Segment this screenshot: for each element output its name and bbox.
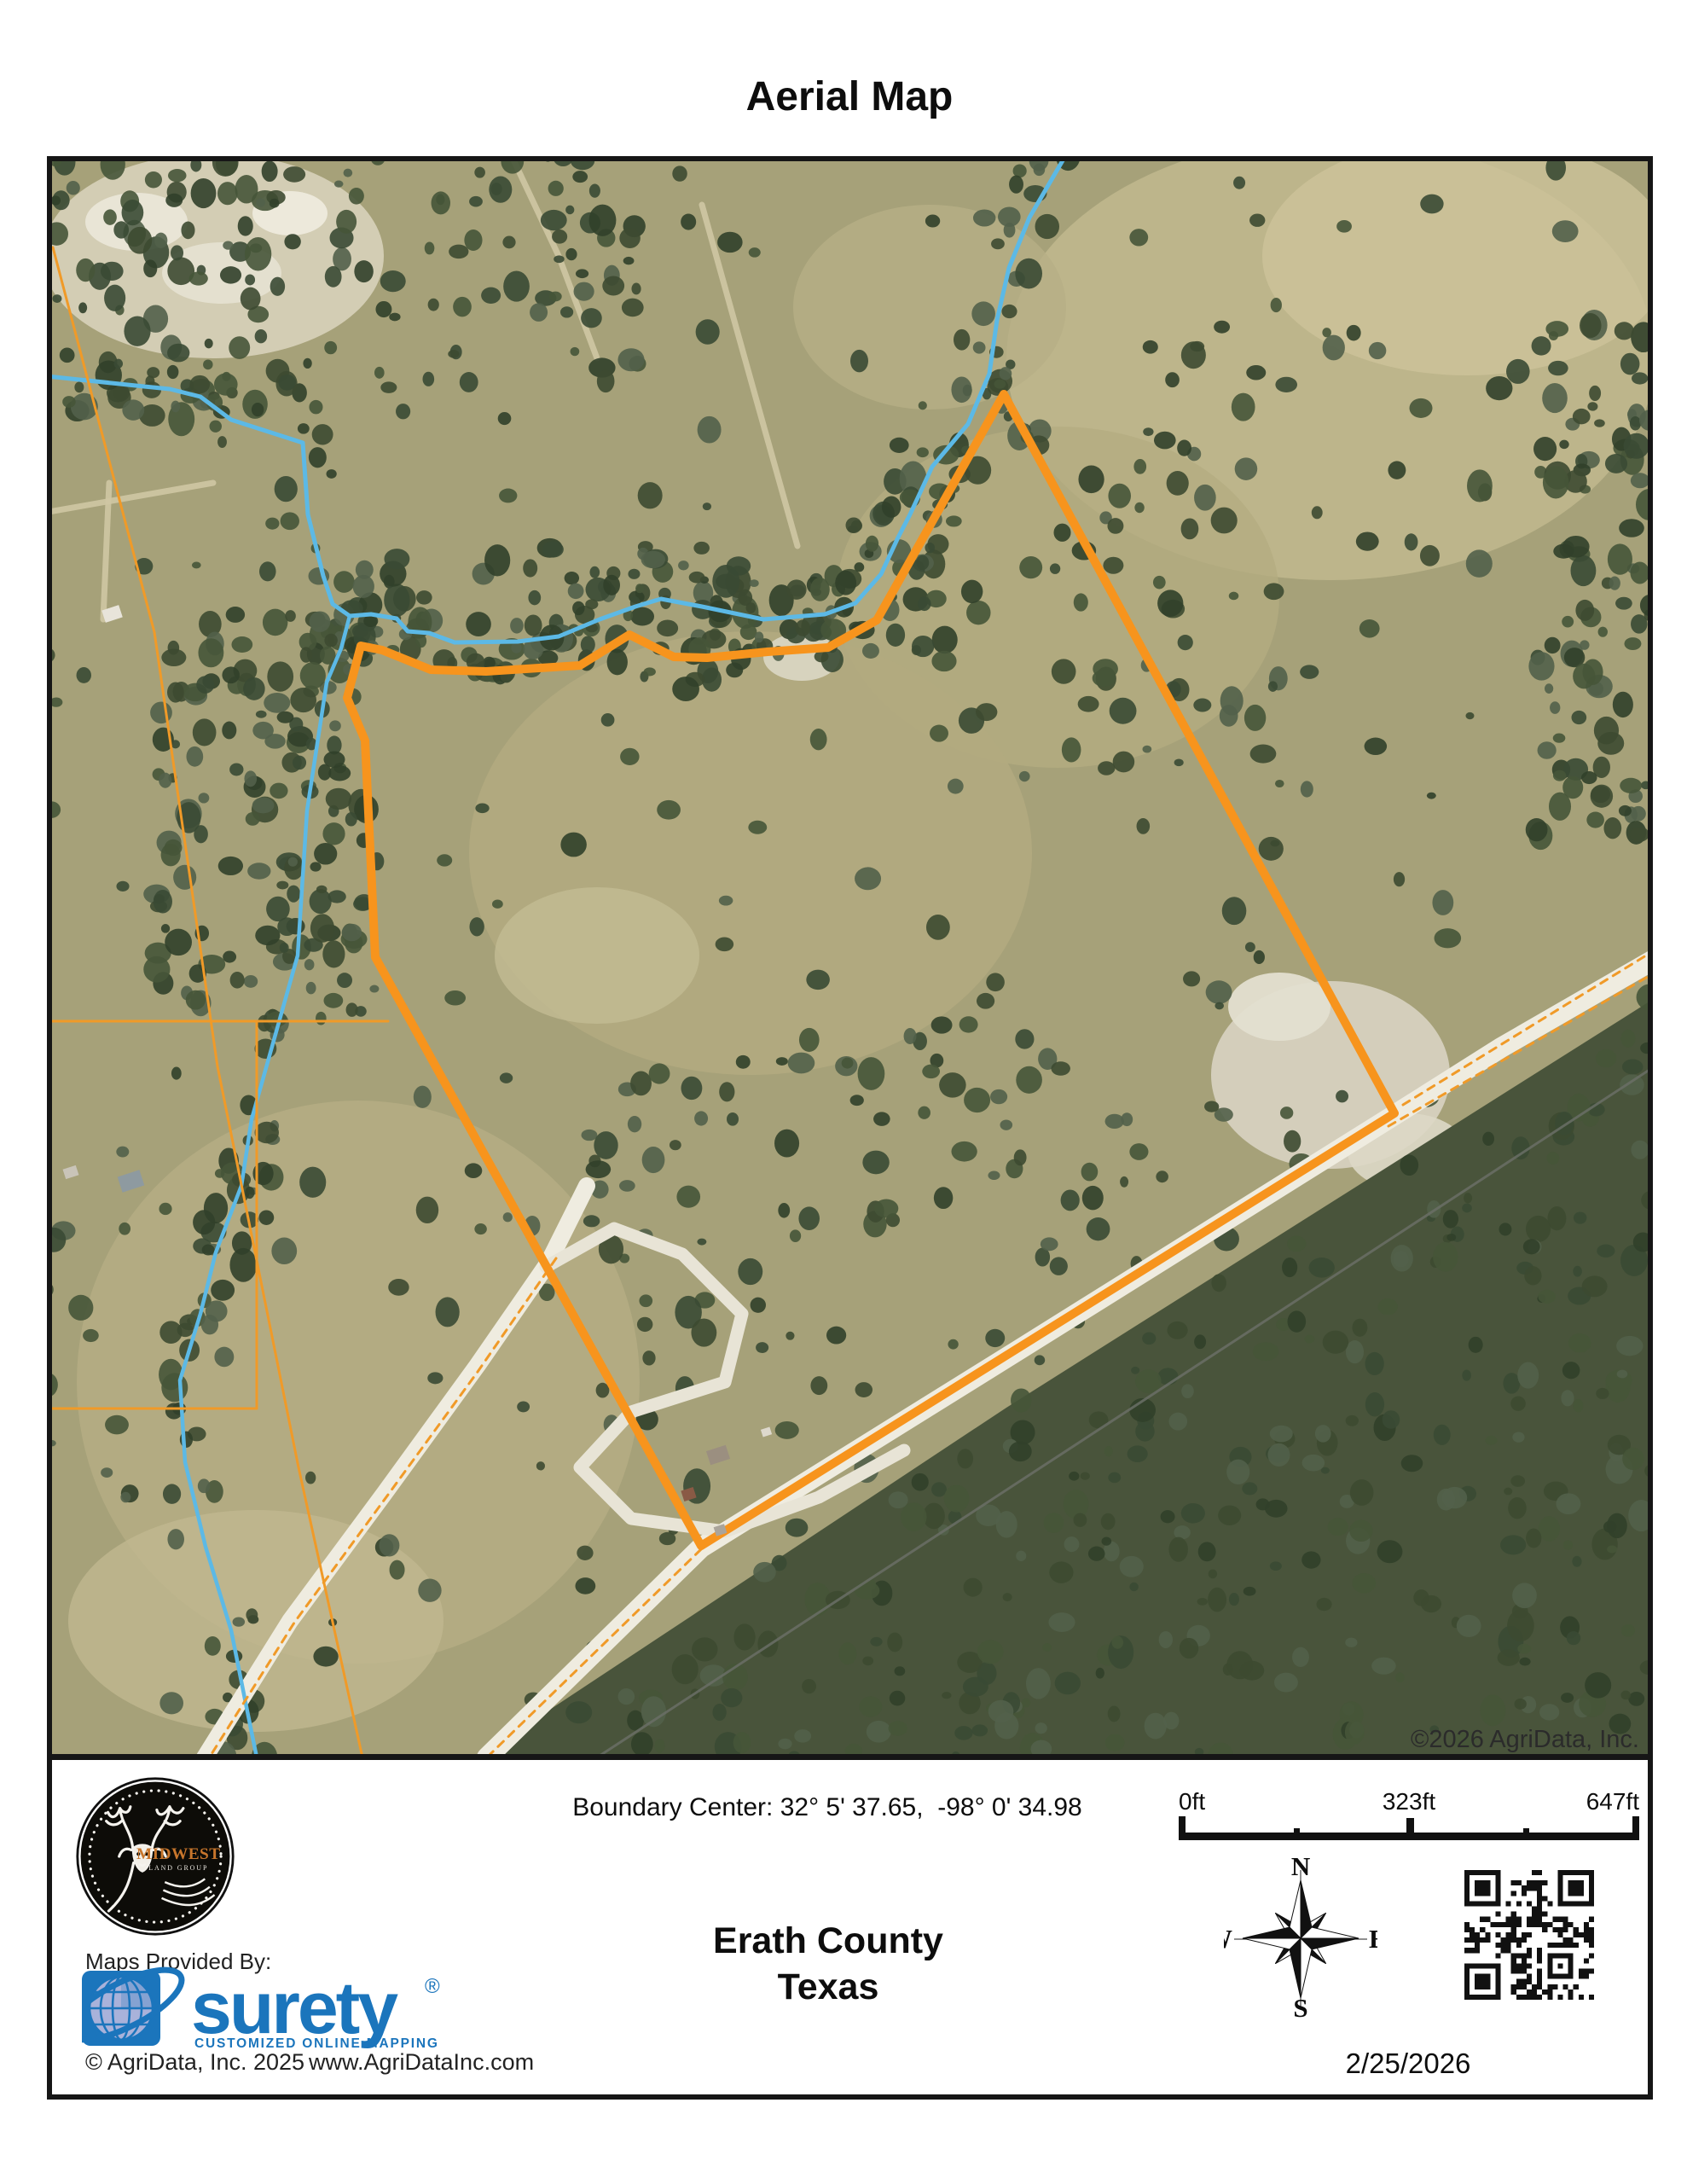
agridata-url: www.AgriDataInc.com (309, 2049, 534, 2076)
agridata-copyright: © AgriData, Inc. 2025 (85, 2049, 304, 2076)
page-title: Aerial Map (0, 73, 1687, 120)
logo-midwest-text: MIDWEST (136, 1845, 221, 1863)
scale-tick (1632, 1816, 1639, 1840)
compass-north-label: N (1291, 1856, 1310, 1881)
county-state-label: Erath County Texas (572, 1918, 1084, 2010)
scale-tick (1523, 1828, 1529, 1840)
compass-west-label: W (1224, 1924, 1232, 1954)
scale-label-start: 0ft (1179, 1788, 1205, 1815)
compass-east-label: E (1369, 1924, 1377, 1954)
compass-rose-icon: N S W E (1224, 1856, 1377, 2022)
globe-icon (82, 1966, 191, 2051)
compass-south-label: S (1293, 1993, 1307, 2022)
state-name: Texas (572, 1964, 1084, 2010)
midwest-land-group-logo: MIDWEST LAND GROUP (75, 1776, 235, 1937)
boundary-center-label: Boundary Center: 32° 5' 37.65, -98° 0' 3… (358, 1793, 1296, 1822)
registered-mark: ® (425, 1975, 440, 1998)
aerial-map-page: Aerial Map ©2026 AgriData, Inc. (0, 0, 1687, 2184)
scale-tick (1406, 1818, 1414, 1840)
qr-code-icon (1464, 1870, 1594, 2000)
logo-land-group-text: LAND GROUP (148, 1864, 208, 1872)
frame-divider (47, 1754, 1653, 1760)
scale-label-end: 647ft (1469, 1788, 1639, 1815)
aerial-map-image: ©2026 AgriData, Inc. (52, 161, 1648, 1754)
map-date: 2/25/2026 (1280, 2047, 1536, 2080)
scale-tick (1294, 1828, 1300, 1840)
map-copyright: ©2026 AgriData, Inc. (1411, 1726, 1639, 1753)
scale-tick (1179, 1816, 1186, 1840)
county-name: Erath County (572, 1918, 1084, 1964)
surety-logo: surety ® CUSTOMIZED ONLINE MAPPING (82, 1966, 457, 2051)
